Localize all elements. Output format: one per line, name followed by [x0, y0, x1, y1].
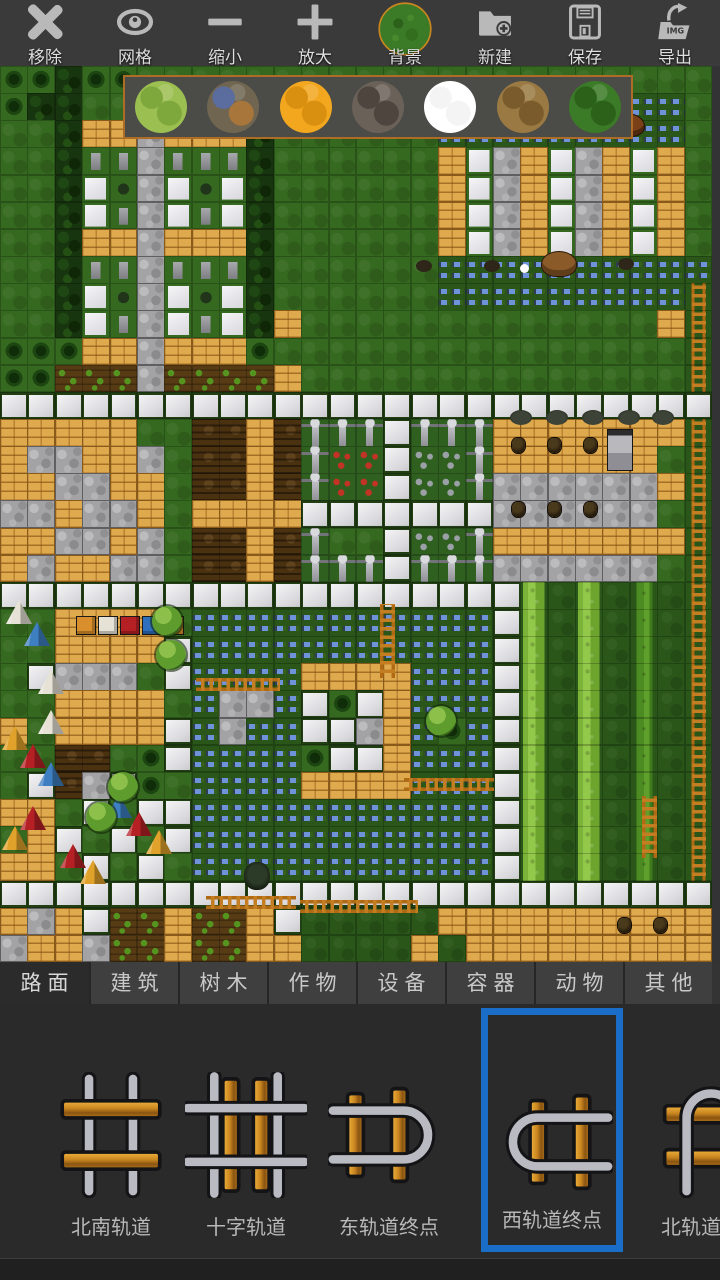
animal-bear [542, 252, 576, 276]
square-tent [120, 616, 140, 635]
svg-text:IMG: IMG [667, 26, 684, 35]
track-cross-icon [185, 1072, 307, 1198]
zoom-out-minus-icon [206, 3, 244, 41]
texture-swatch-dirt[interactable] [497, 81, 549, 133]
animal-dot [520, 264, 529, 273]
palette-item-label: 十字轨道 [175, 1211, 317, 1240]
tab-路面[interactable]: 路面 [0, 962, 89, 1004]
toolbar-button-label: 保存 [568, 43, 602, 68]
texture-swatch-orange-sand[interactable] [280, 81, 332, 133]
toolbar-button-label: 缩小 [208, 43, 242, 68]
zoom-in-plus-icon [296, 3, 334, 41]
tab-树木[interactable]: 树木 [178, 962, 267, 1004]
round-tree [108, 772, 138, 802]
palette-item-label: 北南轨道 [40, 1211, 182, 1240]
palette-item-label: 西轨道终点 [488, 1204, 616, 1233]
texture-swatch-dark-grass[interactable] [569, 81, 621, 133]
tab-建筑[interactable]: 建筑 [89, 962, 178, 1004]
rail-ladder-horizontal [206, 896, 296, 909]
pot [584, 438, 597, 453]
tab-动物[interactable]: 动物 [534, 962, 623, 1004]
track-end-west-icon [491, 1079, 613, 1205]
toolbar-button-save-floppy[interactable]: 保存 [541, 0, 629, 68]
toolbar-button-label: 移除 [28, 43, 62, 68]
shrub-pile [618, 410, 640, 425]
toolbar-button-new-folder-plus[interactable]: 新建 [451, 0, 539, 68]
tab-作物[interactable]: 作物 [267, 962, 356, 1004]
rail-ladder-horizontal [196, 678, 280, 691]
tab-其他[interactable]: 其他 [623, 962, 712, 1004]
animal-small [416, 260, 432, 272]
shrub-pile [582, 410, 604, 425]
rail-ladder-vertical [380, 604, 395, 678]
export-img-icon: IMG [656, 3, 694, 41]
remove-x-icon [26, 3, 64, 41]
palette-item-track-cross[interactable]: 十字轨道 [175, 1008, 317, 1252]
texture-swatch-dark-rock[interactable] [352, 81, 404, 133]
toolbar-button-label: 放大 [298, 43, 332, 68]
tab-设备[interactable]: 设备 [356, 962, 445, 1004]
background-texture-icon [377, 3, 433, 41]
palette-item-track-partial[interactable] [0, 1008, 8, 1252]
palette-item-track-end-north[interactable]: 北轨道终点 [640, 1008, 720, 1252]
toolbar-button-label: 网格 [118, 43, 152, 68]
palette-item-label: 北轨道终点 [640, 1211, 720, 1240]
track-end-east-icon [328, 1072, 450, 1198]
animal-small [618, 258, 634, 270]
palette-item-track-end-west-selected[interactable]: 西轨道终点 [481, 1008, 623, 1252]
toolbar-button-label: 背景 [388, 43, 422, 68]
pot [512, 502, 525, 517]
texture-picker-panel [123, 75, 633, 139]
dark-tree [244, 862, 270, 890]
round-tree [152, 606, 182, 636]
shrub-pile [510, 410, 532, 425]
rail-ladder-vertical [642, 796, 657, 858]
grid-eye-icon [116, 3, 154, 41]
square-tent [98, 616, 118, 635]
category-tabbar: 路面建筑树木作物设备容器动物其他 [0, 962, 720, 1004]
toolbar-button-label: 新建 [478, 43, 512, 68]
toolbar-button-zoom-out-minus[interactable]: 缩小 [181, 0, 269, 68]
round-tree [426, 706, 456, 736]
texture-swatch-water-rock[interactable] [207, 81, 259, 133]
pot [548, 438, 561, 453]
tile-palette: 北南轨道十字轨道东轨道终点西轨道终点北轨道终点 [0, 1004, 720, 1280]
track-ns-icon [50, 1072, 172, 1198]
round-tree [156, 640, 186, 670]
palette-bottom-strip [0, 1258, 720, 1280]
track-end-north-icon [650, 1072, 720, 1198]
round-tree [86, 802, 116, 832]
palette-item-track-end-east[interactable]: 东轨道终点 [318, 1008, 460, 1252]
pot [618, 918, 631, 933]
palette-item-track-ns[interactable]: 北南轨道 [40, 1008, 182, 1252]
texture-swatch-light-grass[interactable] [135, 81, 187, 133]
toolbar-button-background-texture[interactable]: 背景 [361, 0, 449, 68]
toolbar: 移除网格缩小放大背景新建保存IMG导出 [0, 0, 720, 66]
save-floppy-icon [566, 3, 604, 41]
toolbar-button-export-img[interactable]: IMG导出 [631, 0, 719, 68]
pot [654, 918, 667, 933]
square-tent [76, 616, 96, 635]
texture-swatch-white[interactable] [424, 81, 476, 133]
rail-ladder-horizontal [404, 778, 494, 791]
shrub-pile [652, 410, 674, 425]
new-folder-plus-icon [476, 3, 514, 41]
palette-item-label: 东轨道终点 [318, 1211, 460, 1240]
map-editor-app: { "toolbar": { "items": [ {"label":"移除",… [0, 0, 720, 1280]
pot [512, 438, 525, 453]
tabbar-filler [712, 962, 720, 1004]
toolbar-button-grid-eye[interactable]: 网格 [91, 0, 179, 68]
well [608, 430, 632, 470]
toolbar-button-zoom-in-plus[interactable]: 放大 [271, 0, 359, 68]
map-canvas[interactable] [0, 66, 712, 962]
pot [548, 502, 561, 517]
shrub-pile [546, 410, 568, 425]
animal-small [484, 260, 500, 272]
tab-容器[interactable]: 容器 [445, 962, 534, 1004]
pot [584, 502, 597, 517]
toolbar-button-label: 导出 [658, 43, 692, 68]
toolbar-button-remove-x[interactable]: 移除 [1, 0, 89, 68]
rail-ladder-horizontal [300, 900, 418, 913]
